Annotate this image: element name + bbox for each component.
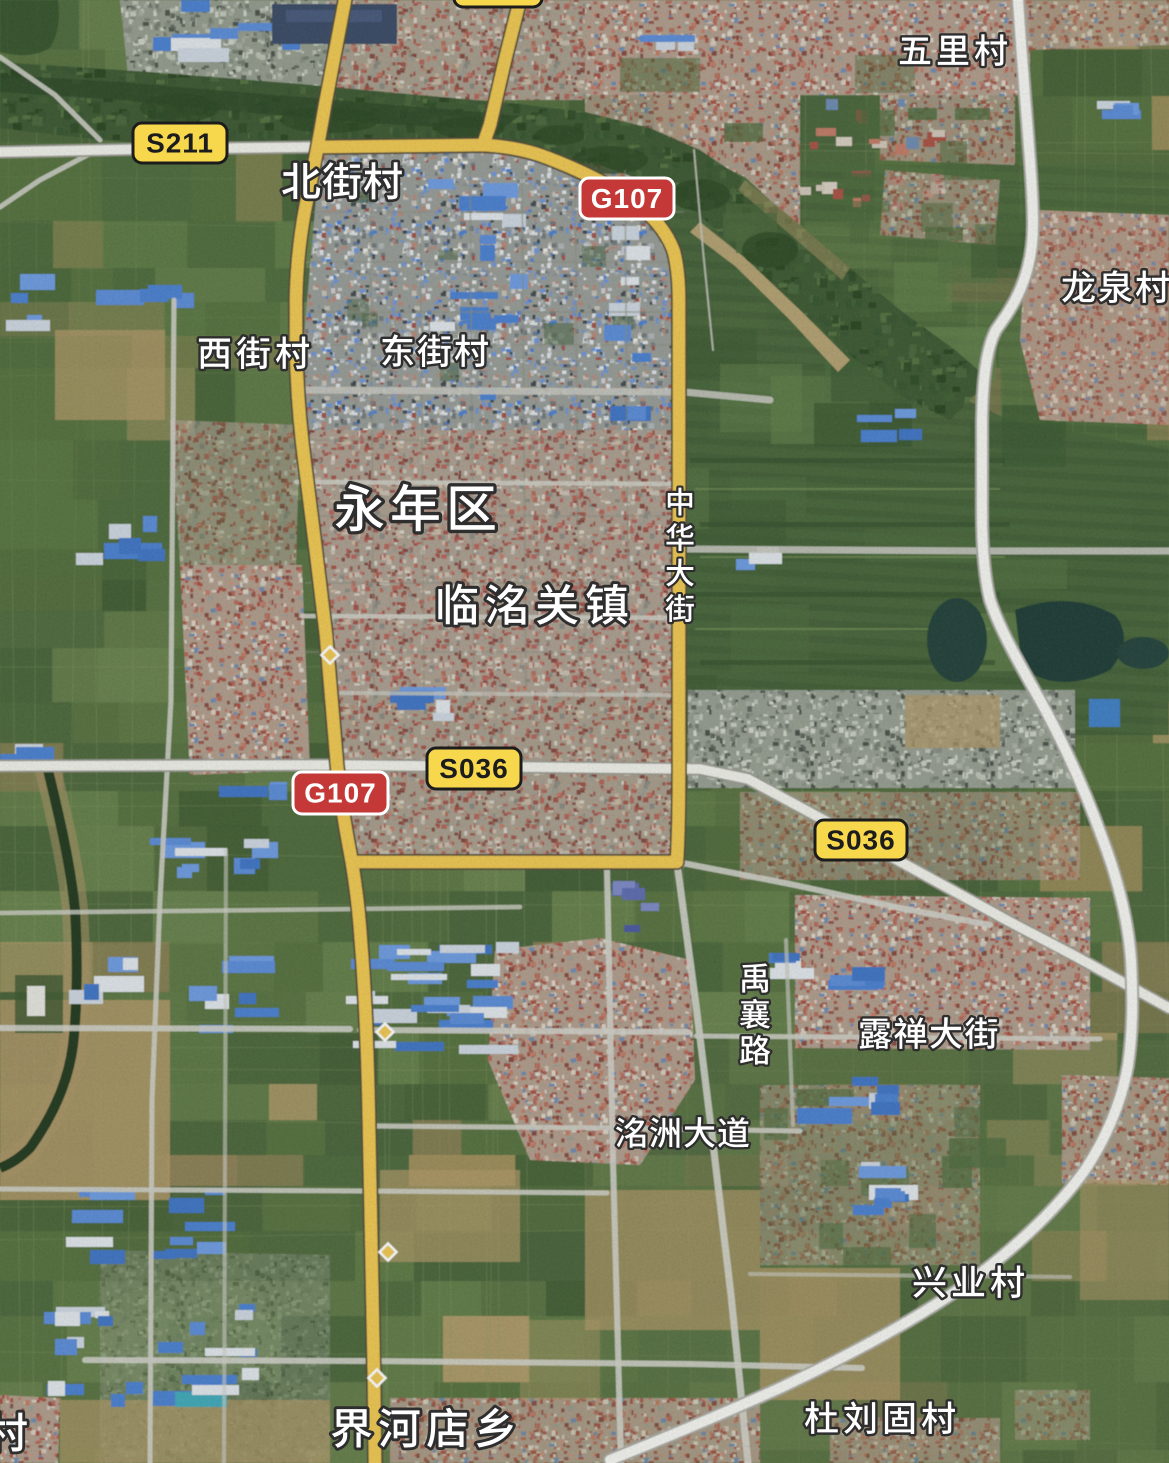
svg-text:S036: S036 xyxy=(826,825,895,856)
svg-text:G107: G107 xyxy=(304,778,377,809)
svg-text:G107: G107 xyxy=(591,183,664,214)
svg-text:S211: S211 xyxy=(146,128,214,159)
svg-text:S036: S036 xyxy=(439,753,508,784)
